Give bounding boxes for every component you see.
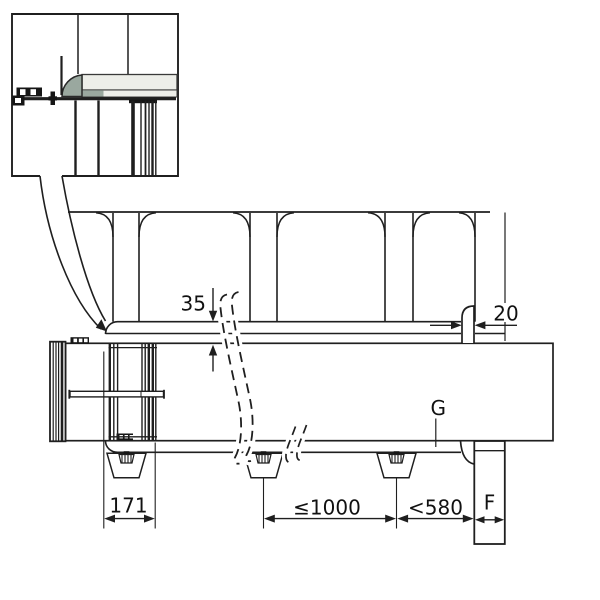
dim-580-label: <580 bbox=[408, 496, 463, 520]
rail-rounded-end bbox=[106, 441, 118, 452]
cassette-end-cap bbox=[50, 342, 66, 442]
rail-rounded-end bbox=[106, 322, 118, 334]
top-fixing-clip bbox=[71, 337, 90, 343]
wall-clamp bbox=[13, 88, 43, 106]
arrowhead-left bbox=[475, 321, 486, 329]
arrowhead-left bbox=[264, 515, 275, 523]
leader-curve bbox=[40, 176, 101, 329]
arrowhead-right bbox=[463, 515, 474, 523]
dimension-1000: ≤1000 bbox=[264, 479, 397, 529]
technical-drawing-canvas: 35 20 171 ≤1000 <580 F G bbox=[0, 0, 600, 600]
rail-profile-section bbox=[82, 75, 177, 91]
rounded-end-cap-section bbox=[62, 75, 82, 97]
guide-rail-label: G bbox=[431, 396, 447, 420]
dim-1000-label: ≤1000 bbox=[293, 496, 361, 520]
clamp-bolt bbox=[49, 92, 58, 106]
mounting-feet bbox=[107, 451, 416, 478]
leader-curve bbox=[62, 176, 106, 321]
detail-inset bbox=[12, 14, 178, 176]
wall-post bbox=[461, 441, 505, 544]
arrowhead-left bbox=[397, 515, 408, 523]
dimension-580: <580 bbox=[397, 496, 473, 523]
dim-20-label: 20 bbox=[493, 302, 518, 326]
rafter bbox=[368, 213, 430, 322]
mounting-foot bbox=[107, 451, 146, 478]
awning-cassette bbox=[50, 337, 553, 441]
gasket-section bbox=[83, 90, 104, 96]
dim-171-label: 171 bbox=[109, 494, 147, 518]
arrowhead-right bbox=[385, 515, 396, 523]
rafter bbox=[96, 213, 156, 322]
dim-F-label: F bbox=[484, 491, 496, 515]
rail-hook bbox=[462, 306, 474, 343]
dim-35-label: 35 bbox=[181, 292, 206, 316]
upper-guide-rail bbox=[106, 306, 506, 343]
mounting-foot bbox=[377, 451, 416, 478]
crank-bar bbox=[69, 390, 164, 399]
lower-rail-hook bbox=[461, 441, 475, 464]
awning-mounting-diagram: 35 20 171 ≤1000 <580 F G bbox=[0, 0, 600, 600]
arrowhead-down bbox=[209, 311, 217, 322]
rafter bbox=[233, 213, 294, 322]
canopy bbox=[68, 212, 490, 322]
cassette-bracket-section bbox=[76, 101, 156, 176]
callout-leader bbox=[40, 176, 107, 332]
